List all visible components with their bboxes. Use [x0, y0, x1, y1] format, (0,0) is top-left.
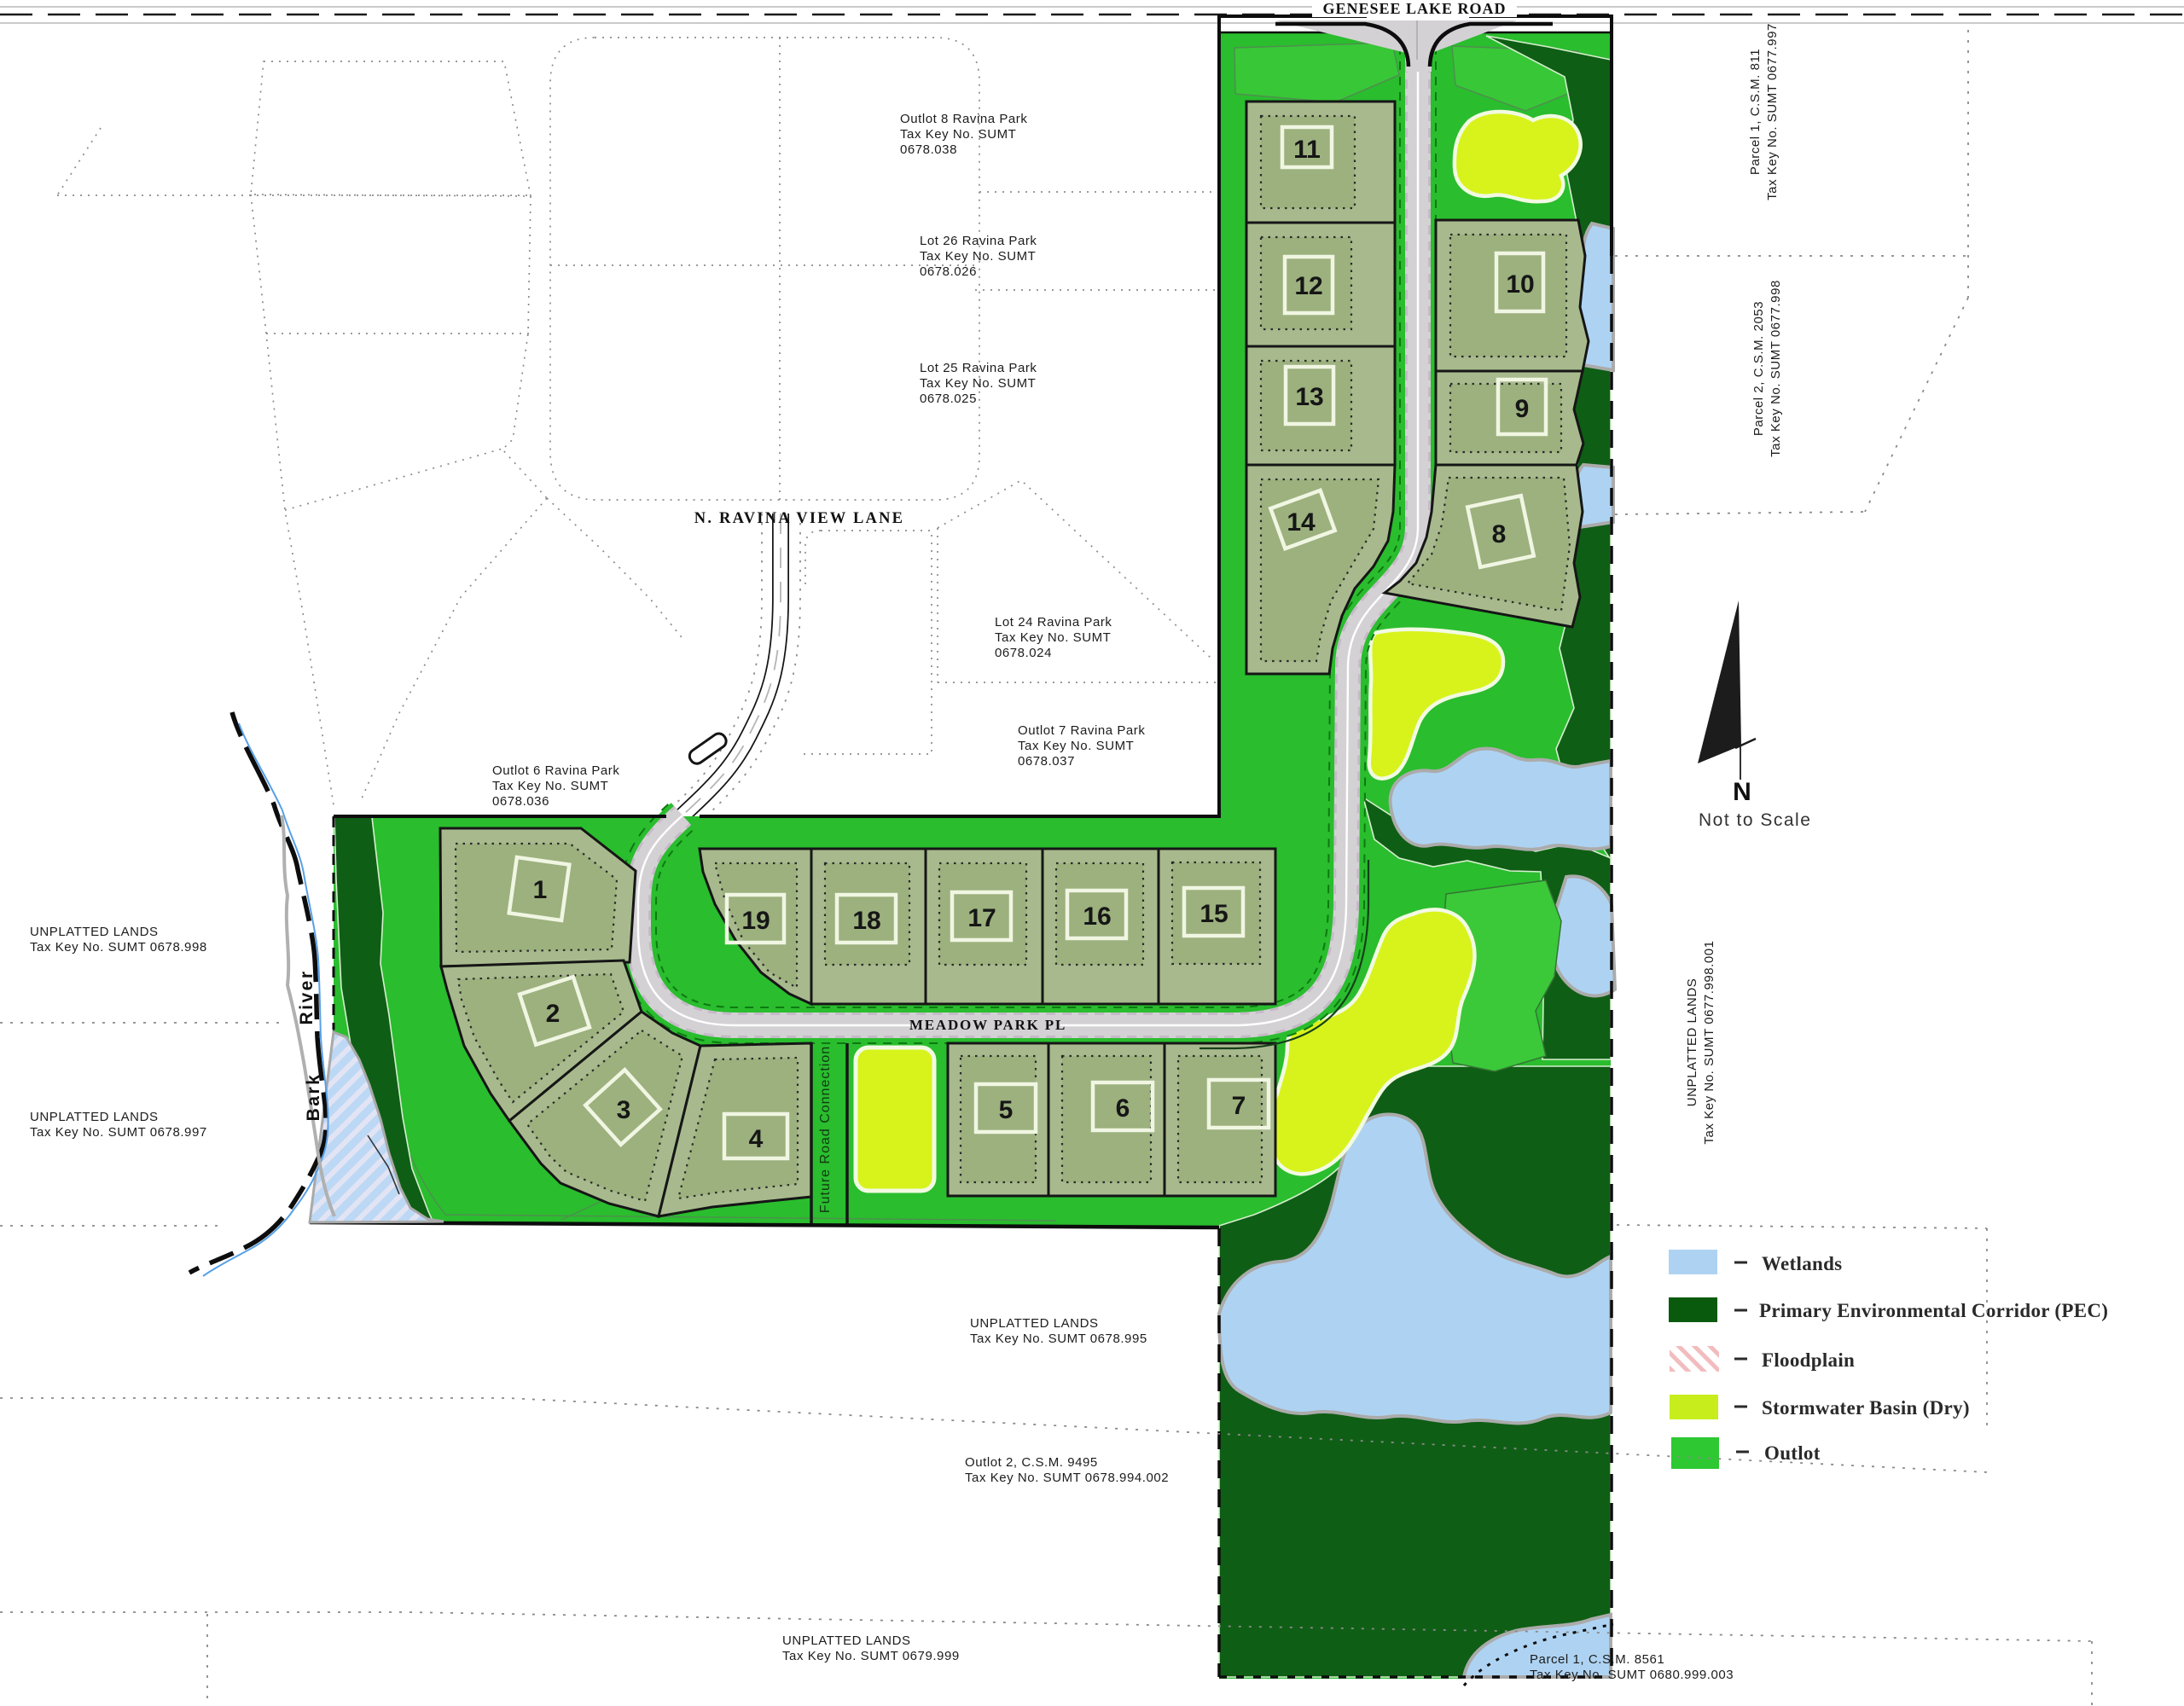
svg-text:3: 3: [617, 1096, 631, 1124]
svg-text:19: 19: [741, 907, 770, 935]
svg-text:12: 12: [1294, 272, 1322, 300]
svg-text:Outlot 2, C.S.M. 9495: Outlot 2, C.S.M. 9495: [965, 1455, 1098, 1470]
svg-text:Future Road Connection: Future Road Connection: [818, 1046, 833, 1213]
svg-text:9: 9: [1515, 395, 1530, 423]
svg-text:N: N: [1733, 778, 1751, 806]
svg-text:Outlot 8 Ravina Park: Outlot 8 Ravina Park: [900, 112, 1027, 126]
svg-text:Tax Key No. SUMT 0679.999: Tax Key No. SUMT 0679.999: [782, 1649, 960, 1663]
svg-text:18: 18: [852, 907, 880, 935]
svg-text:6: 6: [1116, 1094, 1130, 1123]
svg-text:11: 11: [1293, 136, 1321, 164]
svg-text:Bark: Bark: [304, 1073, 323, 1122]
svg-text:Stormwater Basin (Dry): Stormwater Basin (Dry): [1762, 1397, 1970, 1419]
svg-text:MEADOW PARK PL: MEADOW PARK PL: [909, 1017, 1066, 1033]
svg-text:7: 7: [1232, 1092, 1246, 1120]
svg-text:1: 1: [533, 876, 548, 904]
svg-text:5: 5: [999, 1096, 1014, 1124]
svg-text:GENESEE LAKE ROAD: GENESEE LAKE ROAD: [1322, 0, 1506, 17]
svg-text:Floodplain: Floodplain: [1762, 1349, 1855, 1371]
svg-text:8: 8: [1492, 520, 1507, 548]
svg-text:Tax Key No. SUMT: Tax Key No. SUMT: [920, 376, 1036, 391]
svg-text:0678.036: 0678.036: [492, 794, 549, 809]
svg-text:Tax Key No. SUMT: Tax Key No. SUMT: [995, 630, 1111, 645]
svg-text:Tax Key No. SUMT 0677.998.001: Tax Key No. SUMT 0677.998.001: [1702, 940, 1716, 1144]
svg-text:Tax Key No. SUMT: Tax Key No. SUMT: [1018, 739, 1134, 753]
svg-text:Lot 26 Ravina Park: Lot 26 Ravina Park: [920, 234, 1037, 248]
svg-text:0678.026: 0678.026: [920, 264, 977, 279]
svg-text:UNPLATTED LANDS: UNPLATTED LANDS: [30, 925, 159, 939]
svg-text:10: 10: [1506, 270, 1534, 299]
svg-text:Tax Key No. SUMT 0678.997: Tax Key No. SUMT 0678.997: [30, 1125, 207, 1140]
svg-text:2: 2: [546, 1000, 561, 1028]
svg-text:4: 4: [749, 1125, 764, 1153]
svg-text:UNPLATTED LANDS: UNPLATTED LANDS: [30, 1110, 159, 1124]
svg-text:Outlot 6 Ravina Park: Outlot 6 Ravina Park: [492, 763, 619, 778]
svg-text:Tax Key No. SUMT 0677.997: Tax Key No. SUMT 0677.997: [1765, 23, 1780, 200]
svg-text:Primary Environmental Corridor: Primary Environmental Corridor (PEC): [1759, 1300, 2108, 1321]
svg-text:Tax Key No. SUMT 0678.994.002: Tax Key No. SUMT 0678.994.002: [965, 1471, 1169, 1485]
svg-text:0678.038: 0678.038: [900, 142, 957, 157]
svg-text:UNPLATTED LANDS: UNPLATTED LANDS: [1685, 978, 1699, 1107]
svg-text:N. RAVINA VIEW LANE: N. RAVINA VIEW LANE: [694, 510, 904, 527]
svg-text:River: River: [297, 969, 317, 1024]
svg-text:Wetlands: Wetlands: [1762, 1253, 1842, 1274]
svg-text:17: 17: [967, 904, 996, 932]
svg-text:Parcel 2, C.S.M. 2053: Parcel 2, C.S.M. 2053: [1751, 301, 1766, 436]
svg-text:13: 13: [1295, 383, 1323, 411]
svg-text:UNPLATTED LANDS: UNPLATTED LANDS: [970, 1316, 1099, 1331]
svg-text:0678.024: 0678.024: [995, 646, 1052, 660]
svg-text:Outlot: Outlot: [1764, 1442, 1821, 1464]
svg-text:Tax Key No. SUMT 0677.998: Tax Key No. SUMT 0677.998: [1769, 280, 1783, 457]
svg-text:Tax Key No. SUMT 0680.999.003: Tax Key No. SUMT 0680.999.003: [1530, 1668, 1734, 1682]
svg-text:UNPLATTED LANDS: UNPLATTED LANDS: [782, 1633, 911, 1648]
svg-text:14: 14: [1287, 508, 1316, 537]
svg-text:Tax Key No. SUMT: Tax Key No. SUMT: [492, 779, 608, 793]
svg-text:Not to Scale: Not to Scale: [1699, 810, 1811, 830]
svg-text:0678.037: 0678.037: [1018, 754, 1075, 769]
svg-text:Parcel 1, C.S.M. 811: Parcel 1, C.S.M. 811: [1748, 49, 1763, 175]
svg-text:Lot 24 Ravina Park: Lot 24 Ravina Park: [995, 615, 1112, 630]
svg-text:Tax Key No. SUMT 0678.998: Tax Key No. SUMT 0678.998: [30, 940, 207, 955]
svg-text:Parcel 1, C.S.M. 8561: Parcel 1, C.S.M. 8561: [1530, 1652, 1664, 1667]
svg-text:15: 15: [1199, 900, 1228, 928]
svg-text:Tax Key No. SUMT 0678.995: Tax Key No. SUMT 0678.995: [970, 1332, 1147, 1346]
svg-text:Outlot 7 Ravina Park: Outlot 7 Ravina Park: [1018, 723, 1145, 738]
svg-text:Lot 25 Ravina Park: Lot 25 Ravina Park: [920, 361, 1037, 375]
svg-text:0678.025: 0678.025: [920, 392, 977, 406]
svg-text:Tax Key No. SUMT: Tax Key No. SUMT: [900, 127, 1016, 142]
svg-text:Tax Key No. SUMT: Tax Key No. SUMT: [920, 249, 1036, 264]
svg-text:16: 16: [1083, 902, 1111, 931]
